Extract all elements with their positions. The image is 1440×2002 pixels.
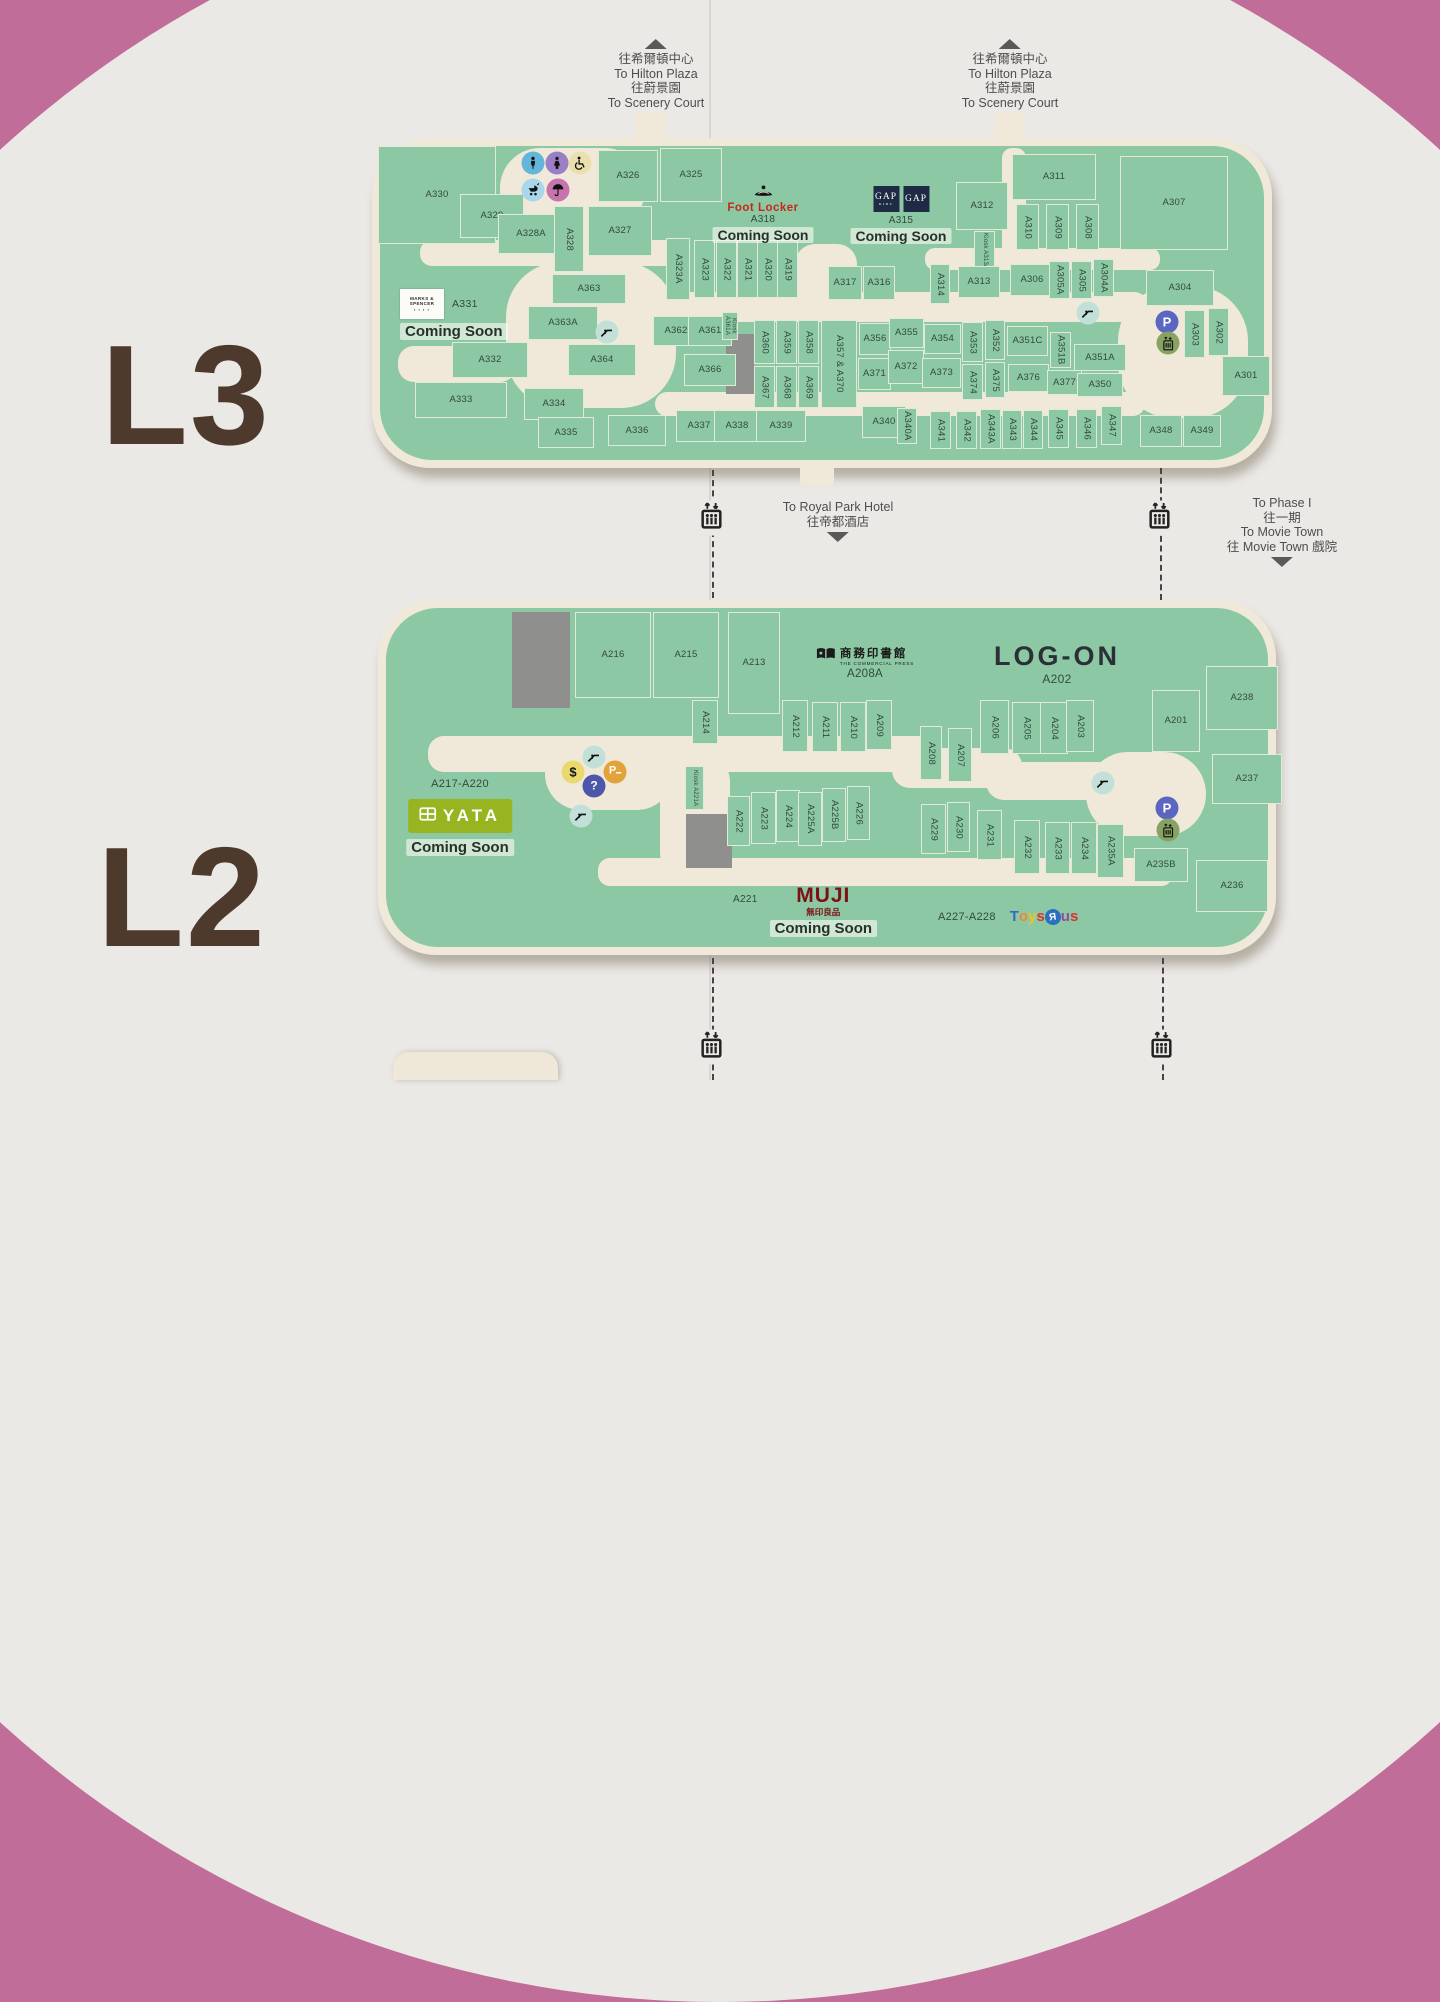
yata-logo: YATA	[408, 799, 512, 833]
unit-a316: A316	[863, 266, 895, 300]
unit-a302: A302	[1208, 308, 1229, 356]
brand-log-on: LOG-ON A202	[994, 641, 1120, 686]
unit-a310: A310	[1016, 204, 1039, 250]
unit-a308: A308	[1076, 204, 1099, 250]
lift-connector-icon	[1148, 1030, 1176, 1065]
sign-text: 往 Movie Town 戲院	[1227, 540, 1337, 555]
lift-connector-icon	[698, 1030, 726, 1065]
unit-a368: A368	[776, 366, 797, 408]
sign-hilton-plaza-right: 往希爾頓中心To Hilton Plaza往蔚景園To Scenery Cour…	[962, 36, 1059, 110]
unit-a366: A366	[684, 354, 736, 386]
unit-a374: A374	[962, 364, 983, 400]
sign-text: To Movie Town	[1227, 525, 1337, 540]
escalator-icon	[1077, 302, 1100, 325]
unit-a318-label: A318	[751, 214, 776, 225]
unit-a350: A350	[1077, 373, 1123, 397]
unit-a214: A214	[692, 700, 718, 744]
mall-directory-photo: Foot Locker A318 Coming Soon GAPKIDS GAP…	[0, 0, 1440, 1080]
sign-text: 往帝都酒店	[783, 515, 893, 530]
foot-locker-name: Foot Locker	[727, 202, 798, 214]
unit-a332: A332	[452, 342, 528, 378]
unit-a209: A209	[866, 700, 892, 750]
lift-icon	[1157, 819, 1180, 842]
unit-a236: A236	[1196, 860, 1268, 912]
dollar-icon: $	[562, 761, 585, 784]
parking-icon: P	[1156, 311, 1179, 334]
unit-a312: A312	[956, 182, 1008, 230]
unit-a217-a220-label: A217-A220	[431, 778, 489, 790]
commercial-press-book-icon	[816, 647, 836, 665]
unit-a235a: A235A	[1097, 824, 1124, 878]
brand-toysrus: A227-A228 ToysRus	[938, 908, 1078, 925]
unit-a338: A338	[714, 410, 760, 442]
unit-a376: A376	[1008, 364, 1049, 392]
unit-a363: A363	[552, 274, 626, 304]
unit-a342: A342	[956, 411, 977, 449]
lift-icon	[1157, 332, 1180, 355]
toilet-female-icon	[546, 152, 569, 175]
sign-text: 往蔚景園	[608, 81, 705, 96]
unit-a210: A210	[840, 702, 866, 752]
unit-a349: A349	[1183, 415, 1221, 447]
unit-a205: A205	[1012, 702, 1041, 754]
unit-a351a: A351A	[1074, 344, 1126, 371]
unit-a319: A319	[777, 240, 798, 298]
unit-a354: A354	[924, 324, 961, 354]
muji-name: MUJI	[796, 886, 850, 906]
unit-a223: A223	[751, 792, 776, 844]
brand-yata: A217-A220 YATA Coming Soon	[406, 778, 514, 856]
arrow-up-icon	[645, 39, 667, 49]
escalator-icon	[583, 746, 606, 769]
unit-a225b: A225B	[822, 788, 846, 842]
sign-text: 往希爾頓中心	[608, 52, 705, 67]
unit-a331-label: A331	[452, 298, 478, 310]
service-area	[686, 814, 732, 868]
unit-a359: A359	[776, 320, 797, 364]
brand-foot-locker: Foot Locker A318 Coming Soon	[713, 183, 814, 243]
arrow-down-icon	[827, 532, 849, 542]
unit-a231: A231	[977, 810, 1002, 860]
lift-connector-icon	[1146, 501, 1174, 536]
unit-a306: A306	[1010, 264, 1054, 296]
unit-kiosk-a361a: Kiosk A361A	[722, 312, 738, 340]
unit-a221-label: A221	[733, 894, 758, 905]
unit-a340a: A340A	[897, 408, 917, 444]
arrow-up-icon	[999, 39, 1021, 49]
unit-a216: A216	[575, 612, 651, 698]
unit-a369: A369	[798, 366, 819, 408]
unit-a364: A364	[568, 344, 636, 376]
unit-a204: A204	[1040, 702, 1068, 754]
unit-a375: A375	[985, 362, 1005, 398]
yata-grid-icon	[419, 806, 436, 826]
unit-a304: A304	[1146, 270, 1214, 306]
meter-icon: P▬	[604, 761, 627, 784]
unit-a357-a370: A357 & A370	[821, 320, 857, 408]
unit-a343: A343	[1002, 410, 1022, 449]
sign-text: 往一期	[1227, 511, 1337, 526]
unit-a317: A317	[828, 266, 862, 300]
unit-a352: A352	[985, 320, 1005, 360]
unit-a321: A321	[737, 240, 758, 298]
unit-a212: A212	[782, 700, 808, 752]
unit-a348: A348	[1140, 415, 1182, 447]
unit-a343a: A343A	[980, 409, 1001, 449]
lift-connector-icon	[698, 501, 726, 536]
unit-a305: A305	[1071, 261, 1092, 299]
coming-soon-label: Coming Soon	[770, 920, 878, 937]
floor-label-l3: L3	[101, 314, 271, 478]
unit-a344: A344	[1023, 410, 1043, 449]
sign-text: To Scenery Court	[608, 96, 705, 111]
arrow-down-icon	[1271, 557, 1293, 567]
accessible-icon	[569, 152, 592, 175]
unit-a215: A215	[653, 612, 719, 698]
foot-locker-figure-icon	[752, 183, 774, 201]
partial-map-below	[393, 1052, 558, 1080]
unit-a334: A334	[524, 388, 584, 420]
unit-a367: A367	[754, 366, 775, 408]
unit-a341: A341	[930, 411, 951, 449]
escalator-icon	[1092, 772, 1115, 795]
unit-a313: A313	[958, 266, 1000, 298]
unit-a208: A208	[920, 726, 942, 780]
unit-a336: A336	[608, 415, 666, 446]
stroller-icon	[522, 179, 545, 202]
unit-a351c: A351C	[1007, 326, 1048, 356]
unit-a303: A303	[1184, 310, 1205, 358]
unit-a323a: A323A	[666, 238, 690, 300]
unit-a333: A333	[415, 382, 507, 418]
unit-a208a-label: A208A	[847, 668, 883, 680]
marks-and-spencer-logo: MARKS & SPENCER ▪ ▪ ▪ ▪	[400, 289, 444, 319]
unit-a202-label: A202	[1042, 672, 1071, 686]
unit-a234: A234	[1071, 822, 1097, 874]
coming-soon-label: Coming Soon	[406, 839, 514, 856]
unit-a238: A238	[1206, 666, 1278, 730]
sign-text: To Hilton Plaza	[962, 67, 1059, 82]
unit-a201: A201	[1152, 690, 1200, 752]
escalator-icon	[570, 805, 593, 828]
unit-kiosk-a313a: Kiosk A313A	[974, 231, 995, 271]
unit-a339: A339	[756, 410, 806, 442]
unit-a358: A358	[798, 320, 819, 364]
unit-a347: A347	[1101, 406, 1122, 445]
parking-icon: P	[1156, 797, 1179, 820]
unit-a305a: A305A	[1049, 261, 1070, 299]
toysrus-logo: ToysRus	[1010, 908, 1079, 925]
sign-text: To Phase I	[1227, 496, 1337, 511]
unit-a232: A232	[1014, 820, 1040, 874]
unit-a227-a228-label: A227-A228	[938, 911, 996, 923]
service-area	[512, 612, 570, 708]
log-on-name: LOG-ON	[994, 641, 1120, 672]
unit-a307: A307	[1120, 156, 1228, 250]
unit-a235b: A235B	[1134, 848, 1188, 882]
unit-a237: A237	[1212, 754, 1282, 804]
unit-a301: A301	[1222, 356, 1270, 396]
unit-a372: A372	[888, 350, 924, 384]
unit-a373: A373	[922, 358, 961, 388]
unit-a224: A224	[776, 790, 800, 842]
brand-muji: A221 MUJI 無印良品 Coming Soon	[733, 886, 877, 937]
unit-a233: A233	[1045, 822, 1070, 874]
unit-a311: A311	[1012, 154, 1096, 200]
info-icon: ?	[583, 775, 606, 798]
sign-text: To Hilton Plaza	[608, 67, 705, 82]
sign-royal-park-hotel: To Royal Park Hotel往帝都酒店	[783, 500, 893, 545]
unit-a229: A229	[921, 804, 946, 854]
brand-marks-and-spencer: MARKS & SPENCER ▪ ▪ ▪ ▪ A331 Coming Soon	[400, 289, 550, 341]
unit-a327: A327	[588, 206, 652, 256]
unit-a345: A345	[1048, 409, 1069, 448]
sign-hilton-plaza-left: 往希爾頓中心To Hilton Plaza往蔚景園To Scenery Cour…	[608, 36, 705, 110]
sign-text: To Scenery Court	[962, 96, 1059, 111]
unit-a328: A328	[554, 206, 584, 272]
unit-a222: A222	[727, 796, 750, 846]
unit-a315-label: A315	[889, 215, 914, 226]
unit-a230: A230	[947, 802, 970, 852]
unit-kiosk-a221a: Kiosk A221A	[685, 766, 704, 810]
unit-a322: A322	[716, 240, 737, 298]
brand-gap: GAPKIDS GAP A315 Coming Soon	[851, 186, 952, 244]
toilet-male-icon	[522, 152, 545, 175]
unit-a335: A335	[538, 417, 594, 448]
floor-label-l2: L2	[97, 816, 267, 980]
gap-logo: GAP	[903, 186, 929, 212]
commercial-press-name-cn: 商務印書館	[840, 645, 914, 661]
unit-a314: A314	[930, 264, 950, 304]
unit-a353: A353	[962, 322, 983, 362]
nursing-icon	[547, 179, 570, 202]
unit-a326: A326	[598, 150, 658, 202]
unit-a346: A346	[1076, 409, 1097, 448]
unit-a320: A320	[757, 240, 778, 298]
unit-a226: A226	[847, 786, 870, 840]
unit-a207: A207	[948, 728, 972, 782]
unit-a351b: A351B	[1050, 332, 1071, 368]
unit-a355: A355	[889, 318, 924, 348]
unit-a360: A360	[754, 320, 775, 364]
sign-text: To Royal Park Hotel	[783, 500, 893, 515]
unit-a211: A211	[812, 702, 838, 752]
sign-phase1-movie-town: To Phase I往一期To Movie Town往 Movie Town 戲…	[1227, 496, 1337, 570]
brand-commercial-press: 商務印書館 THE COMMERCIAL PRESS A208A	[816, 645, 914, 680]
escalator-icon	[596, 321, 619, 344]
gap-kids-logo: GAPKIDS	[873, 186, 899, 212]
sign-text: 往希爾頓中心	[962, 52, 1059, 67]
unit-a225a: A225A	[798, 792, 822, 846]
coming-soon-label: Coming Soon	[400, 323, 508, 340]
commercial-press-name-en: THE COMMERCIAL PRESS	[840, 661, 914, 666]
unit-a206: A206	[980, 700, 1009, 754]
unit-a356: A356	[859, 323, 891, 355]
muji-name-cn: 無印良品	[806, 906, 840, 918]
sign-text: 往蔚景園	[962, 81, 1059, 96]
coming-soon-label: Coming Soon	[713, 227, 814, 243]
unit-a371: A371	[858, 358, 891, 390]
unit-a203: A203	[1066, 700, 1094, 752]
unit-a323: A323	[694, 240, 715, 298]
unit-a213: A213	[728, 612, 780, 714]
coming-soon-label: Coming Soon	[851, 228, 952, 244]
unit-a309: A309	[1046, 204, 1069, 250]
unit-a304a: A304A	[1093, 259, 1114, 297]
